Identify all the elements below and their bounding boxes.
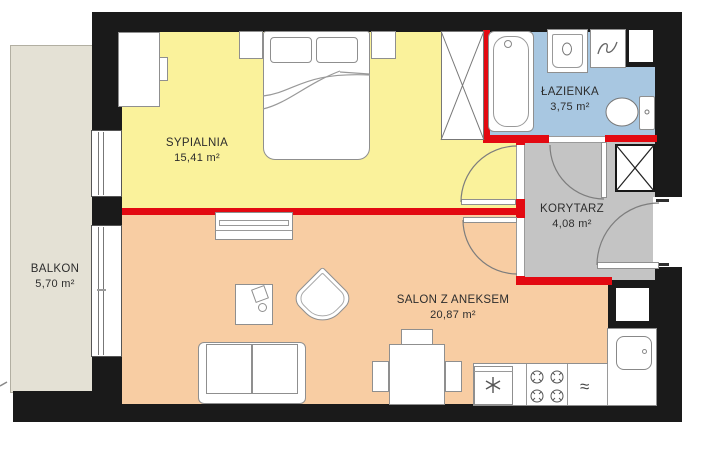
wall-red-corridor-bottom xyxy=(517,277,612,285)
sideboard-shelf xyxy=(219,220,289,226)
corridor-label: KORYTARZ 4,08 m² xyxy=(540,202,604,232)
bathroom-door-leaf xyxy=(601,142,607,198)
dining-table xyxy=(389,344,445,405)
dining-chair-right xyxy=(445,361,462,392)
bedroom-area: 15,41 m² xyxy=(166,151,228,166)
sideboard-line xyxy=(216,230,292,231)
balcony-area: 5,70 m² xyxy=(31,277,79,292)
shaft-kitchen xyxy=(616,288,649,321)
corridor-name: KORYTARZ xyxy=(540,202,604,217)
dishwasher-icon: ≈ xyxy=(580,378,589,395)
bathroom-area: 3,75 m² xyxy=(541,100,599,115)
living-room-area: 20,87 m² xyxy=(397,308,510,323)
wall-red-bedroom-living xyxy=(122,208,516,215)
bedroom-label: SYPIALNIA 15,41 m² xyxy=(166,136,228,166)
dishwasher-divider xyxy=(607,364,608,405)
dimension-tick xyxy=(0,382,7,386)
salon-window-handle xyxy=(97,289,106,291)
sideboard xyxy=(215,212,293,240)
living-door-opening xyxy=(516,218,525,276)
shaft-top-right xyxy=(629,30,653,62)
wardrobe xyxy=(118,32,160,107)
living-room-label: SALON Z ANEKSEM 20,87 m² xyxy=(397,293,510,323)
pillow-left xyxy=(270,37,312,63)
table-decor-circle xyxy=(258,303,267,312)
bathroom-door-opening xyxy=(549,136,605,143)
living-door-leaf xyxy=(463,217,517,223)
toilet-tank xyxy=(639,96,655,130)
tall-wardrobe-bedroom xyxy=(441,31,484,140)
living-room-name: SALON Z ANEKSEM xyxy=(397,293,510,308)
wardrobe-handle xyxy=(159,57,168,81)
nightstand-right xyxy=(371,31,396,59)
wall-red-corridor-mid-seg xyxy=(516,199,525,218)
faucet-dot xyxy=(642,349,647,354)
pillow-right xyxy=(316,37,358,63)
sofa-cushion-left xyxy=(206,344,252,394)
salon-window-frame xyxy=(98,227,104,355)
bedroom-door-opening xyxy=(516,145,525,199)
wall-red-bathroom-bottom-left xyxy=(483,135,549,143)
wall-red-bathroom-bottom-right xyxy=(605,135,657,142)
balcony-label: BALKON 5,70 m² xyxy=(31,262,79,292)
balcony-floor xyxy=(10,45,93,393)
bathroom-name: ŁAZIENKA xyxy=(541,85,599,100)
entrance-door-frame-tick xyxy=(656,199,669,202)
balcony-name: BALKON xyxy=(31,262,79,277)
corridor-area: 4,08 m² xyxy=(540,217,604,232)
bedroom-door-leaf xyxy=(461,199,516,205)
entrance-door-leaf xyxy=(597,262,659,269)
salon-balcony-window xyxy=(91,225,122,357)
bathtub-inner xyxy=(493,36,529,127)
kitchen-sink xyxy=(616,336,652,370)
bathroom-label: ŁAZIENKA 3,75 m² xyxy=(541,85,599,115)
tall-wardrobe-corridor xyxy=(615,144,655,192)
dining-chair-left xyxy=(372,361,389,392)
sofa-cushion-right xyxy=(252,344,298,394)
wall-bottom xyxy=(122,404,682,422)
bedroom-window-frame xyxy=(98,132,104,195)
bedroom-balcony-window xyxy=(91,130,122,197)
fridge-counter-line xyxy=(474,371,513,372)
wall-balcony-bottom xyxy=(13,391,122,422)
cooktop xyxy=(526,364,568,405)
bedroom-name: SYPIALNIA xyxy=(166,136,228,151)
nightstand-left xyxy=(239,31,263,59)
entrance-opening xyxy=(653,197,682,267)
dining-chair-top xyxy=(401,329,433,345)
washing-machine xyxy=(590,29,626,68)
washbasin-inner xyxy=(552,34,583,68)
floor-plan: ≈ xyxy=(0,0,710,455)
